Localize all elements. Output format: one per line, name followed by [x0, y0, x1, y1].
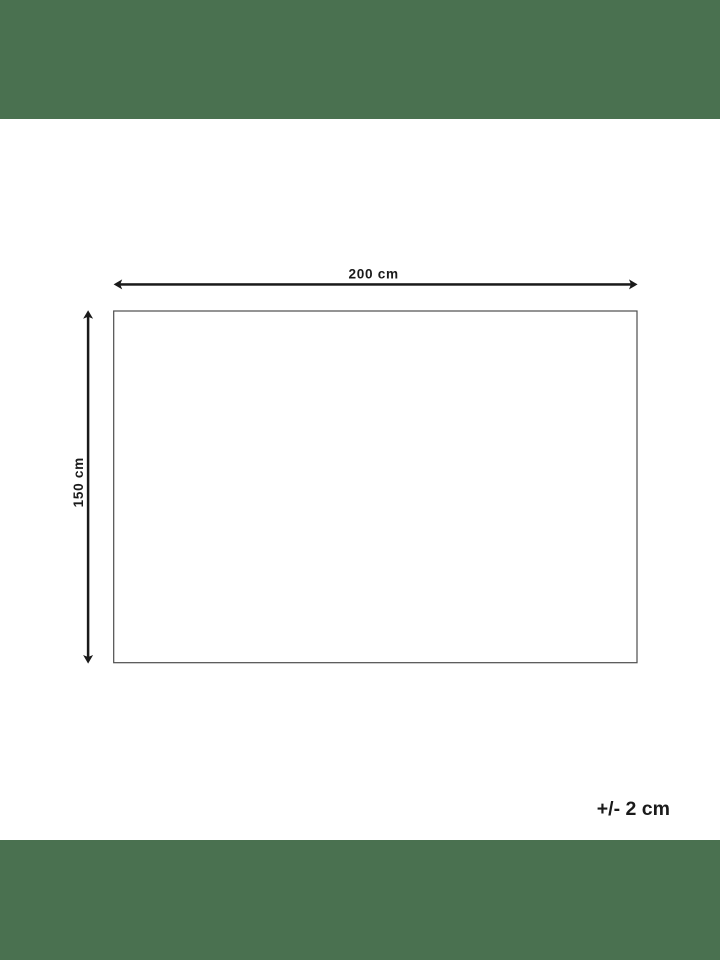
svg-text:+/- 2 cm: +/- 2 cm [597, 798, 670, 820]
svg-text:200 cm: 200 cm [348, 266, 398, 281]
svg-text:150 cm: 150 cm [71, 457, 86, 507]
